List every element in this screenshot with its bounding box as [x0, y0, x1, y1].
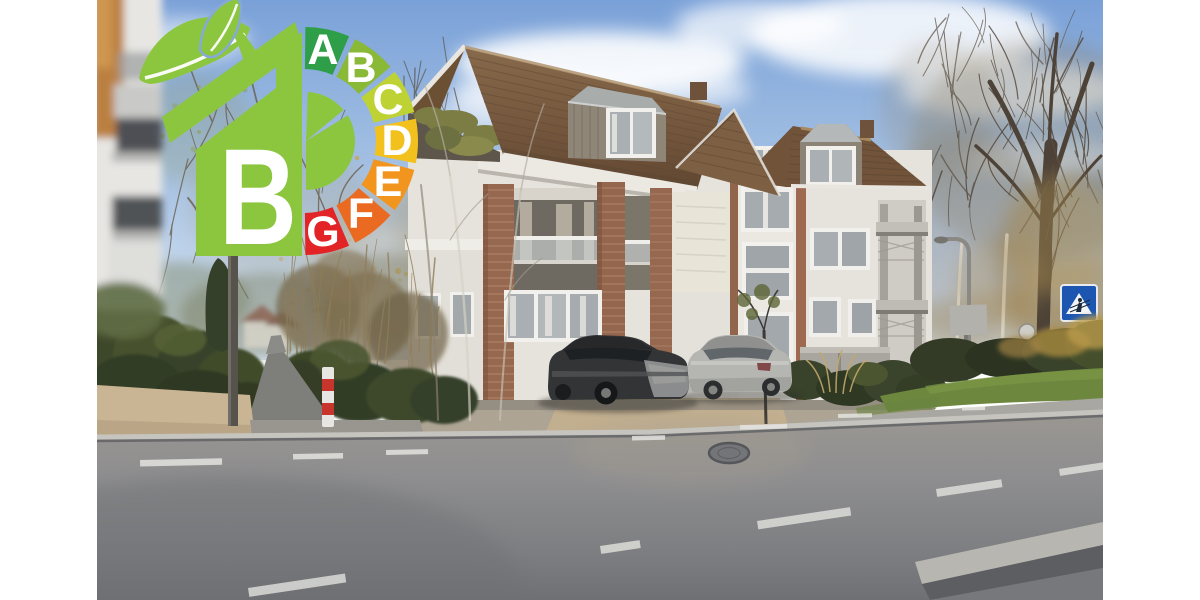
- svg-text:G: G: [306, 208, 339, 256]
- svg-text:F: F: [348, 190, 374, 238]
- svg-text:E: E: [374, 158, 403, 206]
- svg-text:A: A: [307, 26, 338, 74]
- svg-text:B: B: [219, 121, 297, 274]
